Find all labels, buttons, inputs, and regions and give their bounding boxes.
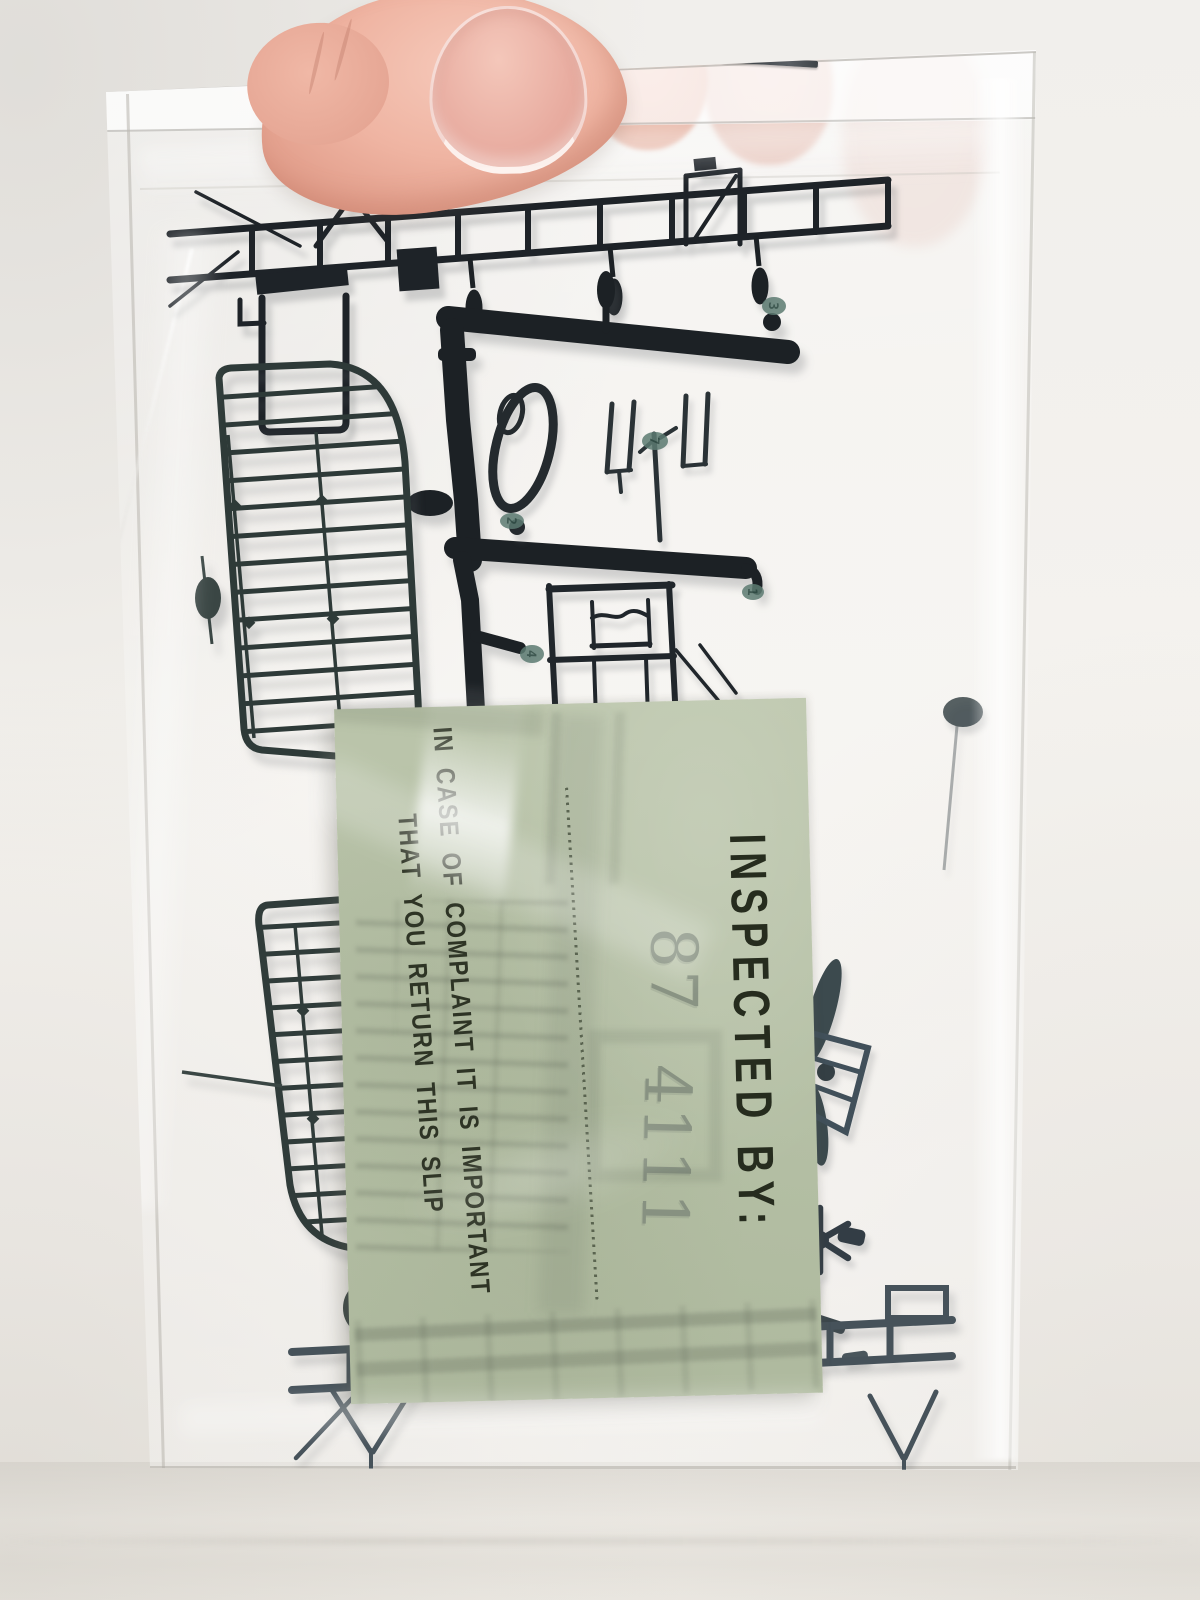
stamp-number: 87 4111 — [635, 927, 710, 1236]
stamp-number-left: 87 — [636, 927, 710, 1013]
fork-parts — [607, 394, 708, 540]
stamp-number-right: 4111 — [626, 1064, 704, 1236]
inspection-slip: INSPECTED BY: 87 4111 IN CASE OF COMPLAI… — [334, 698, 823, 1404]
part-tag-7: 7 — [646, 437, 661, 446]
clear-plastic-bag: 3 2 7 4 1 INSPECTED BY: 87 4111 IN — [0, 0, 1200, 1600]
wing-grid-upper — [195, 364, 420, 761]
slip-note: IN CASE OF COMPLAINT IT IS IMPORTANT THA… — [379, 705, 502, 1320]
propeller-and-wheel-parts — [793, 697, 983, 1364]
table-shadow — [0, 1462, 1200, 1600]
photo-scene: 3 2 7 4 1 INSPECTED BY: 87 4111 IN — [0, 0, 1200, 1600]
slip-title: INSPECTED BY: — [718, 699, 784, 1367]
part-tag-3: 3 — [765, 302, 780, 311]
part-tag-1: 1 — [744, 588, 759, 597]
oval-ring-part — [482, 381, 564, 535]
background-crease — [0, 1538, 1200, 1544]
signature-dotted-line — [565, 788, 599, 1303]
part-tag-4: 4 — [523, 650, 538, 659]
part-tag-2: 2 — [503, 517, 518, 526]
